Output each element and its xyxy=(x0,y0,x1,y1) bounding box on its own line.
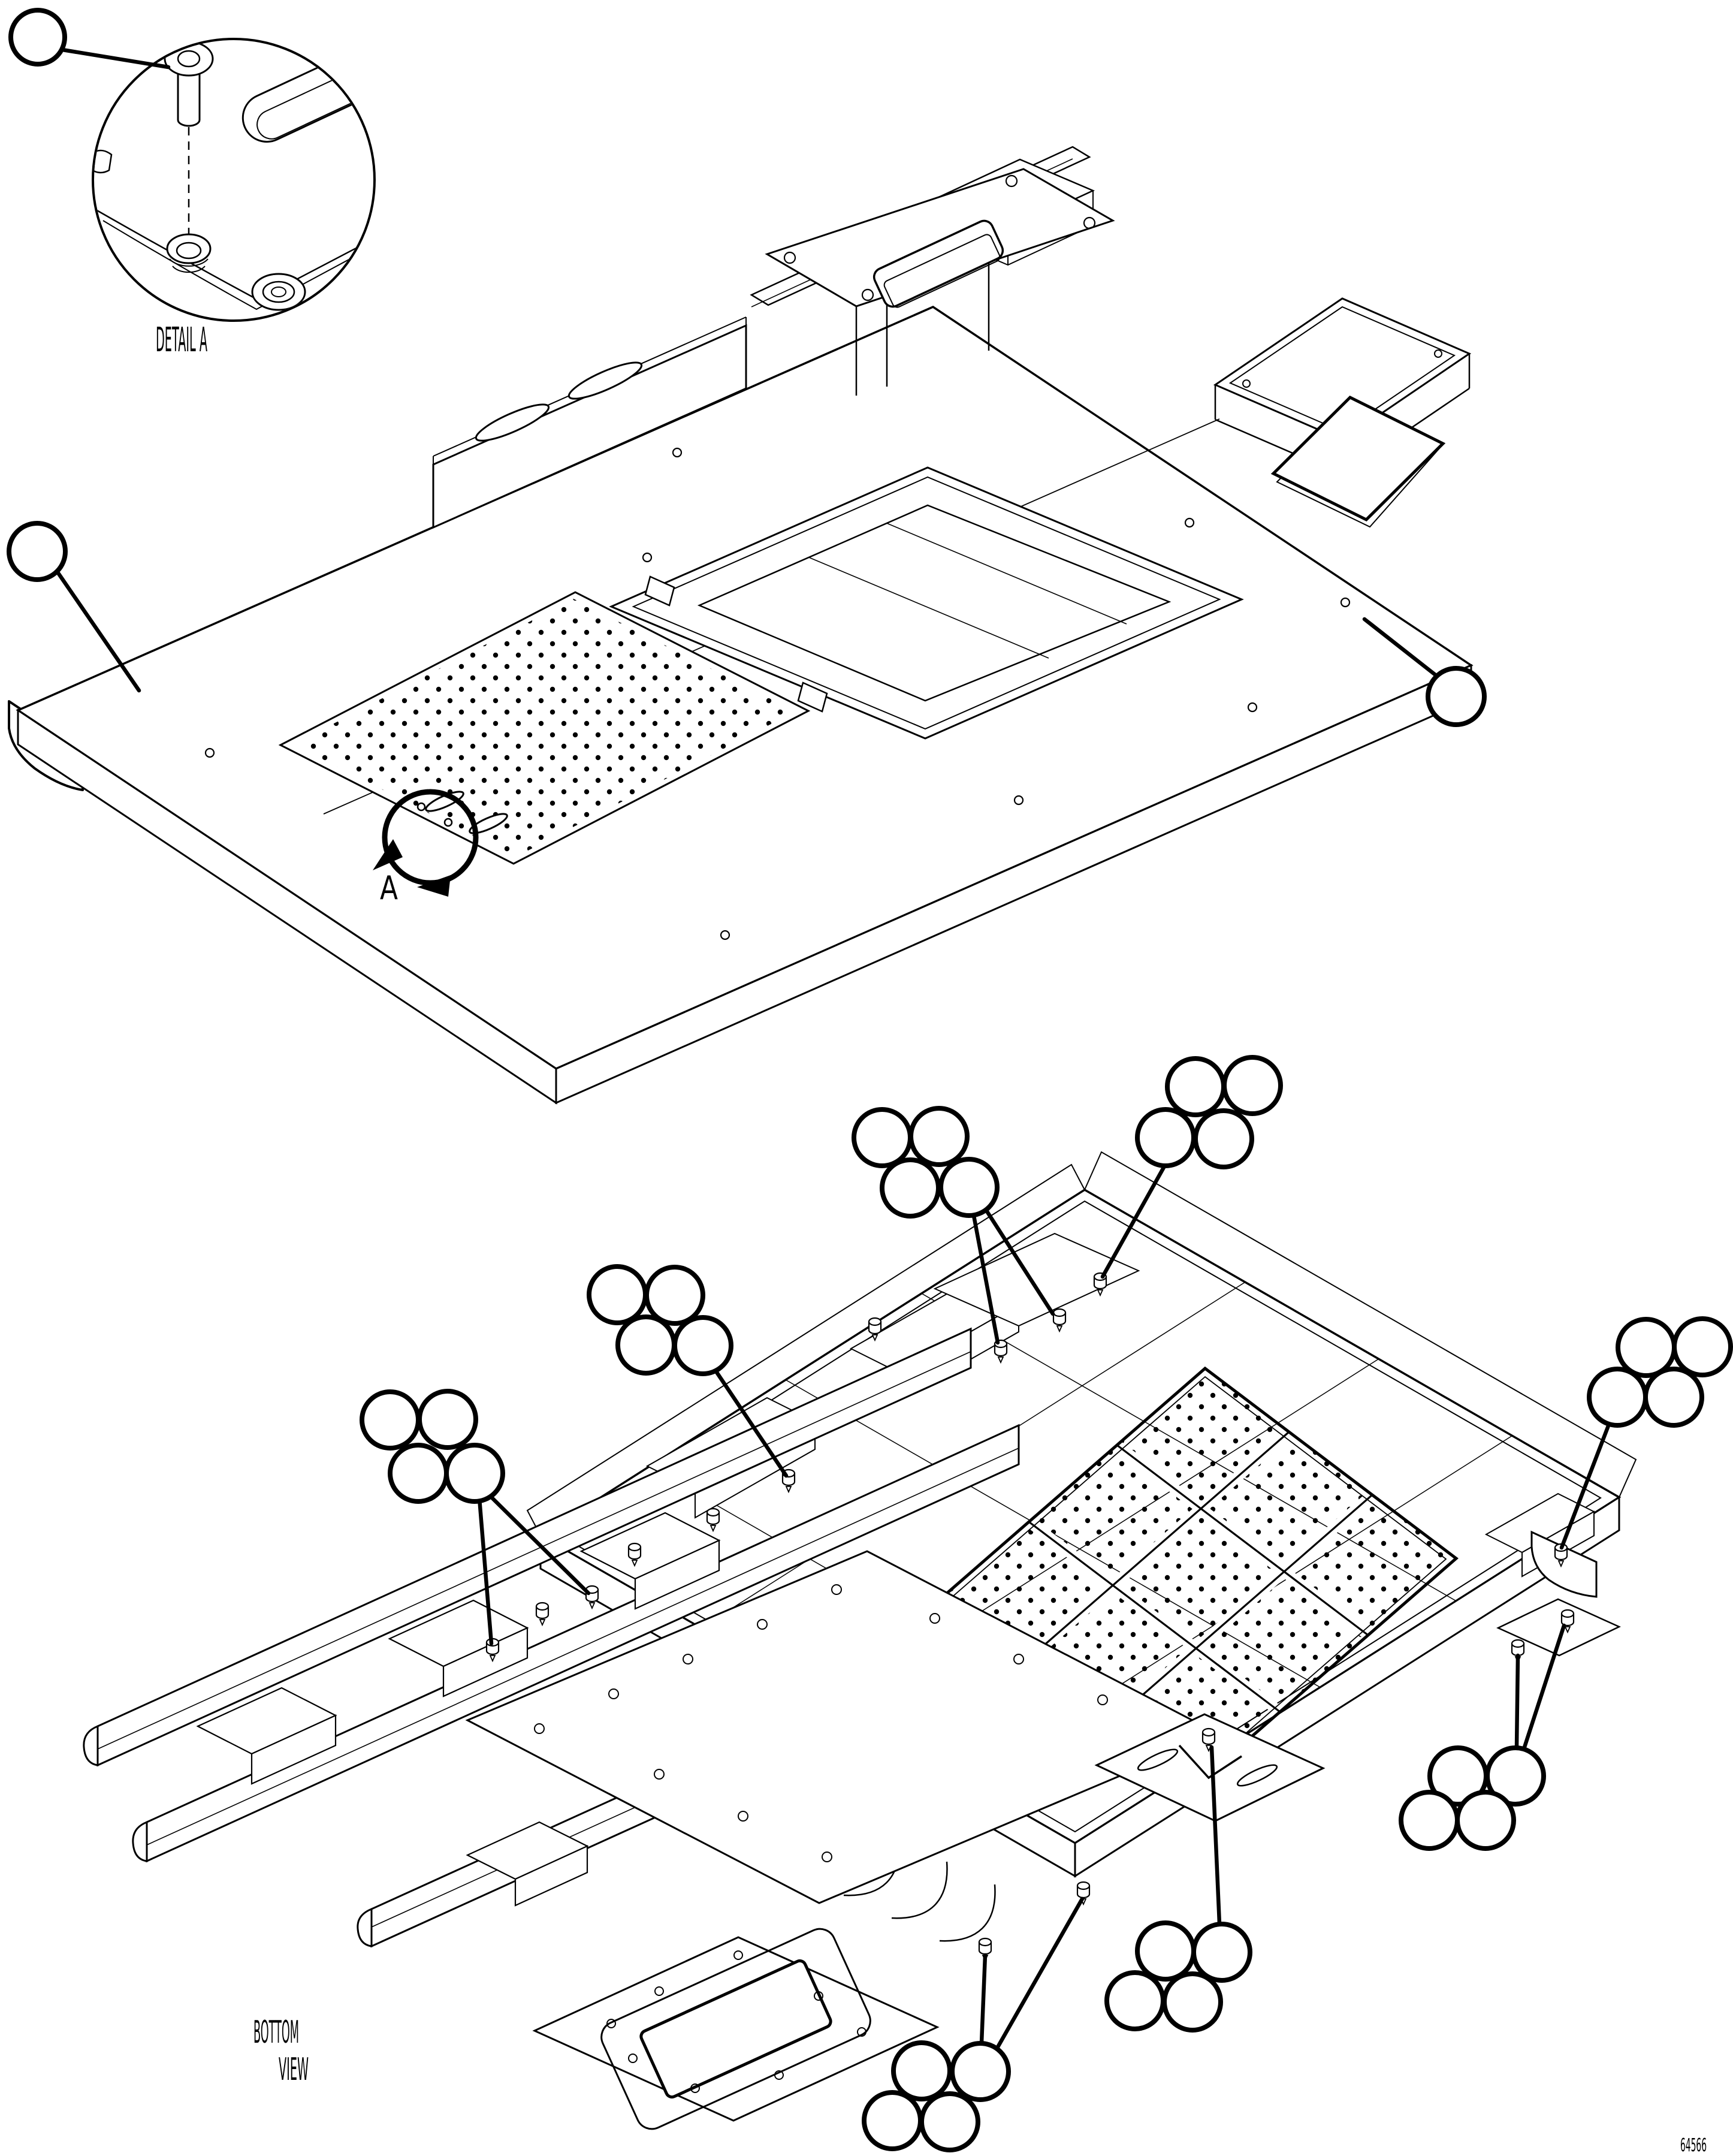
callout-balloon[interactable] xyxy=(1137,1109,1194,1166)
callout-balloon[interactable] xyxy=(1401,1792,1457,1849)
callout-balloon[interactable] xyxy=(941,1159,997,1216)
callout-balloon[interactable] xyxy=(419,1391,476,1448)
callout-balloon[interactable] xyxy=(893,2043,950,2099)
callout-balloon[interactable] xyxy=(362,1392,418,1448)
callout-balloon[interactable] xyxy=(647,1267,703,1323)
callout-leader xyxy=(997,1899,1082,2048)
balloon-detail-screw xyxy=(11,10,168,67)
callout-balloon[interactable] xyxy=(1224,1057,1281,1114)
callout-balloon[interactable] xyxy=(922,2094,978,2150)
callout-leader xyxy=(62,50,168,67)
callout-balloon[interactable] xyxy=(446,1445,503,1501)
fastener-bolt xyxy=(586,1586,598,1608)
threaded-hole xyxy=(167,234,210,272)
callout-balloon[interactable] xyxy=(1428,668,1484,725)
rotation-label: A xyxy=(380,869,398,907)
callout-balloon[interactable] xyxy=(1618,1319,1674,1376)
callout-balloon[interactable] xyxy=(1167,1059,1224,1115)
callout-balloon[interactable] xyxy=(675,1317,731,1374)
bottom-view-label-line1: BOTTOM xyxy=(253,2015,299,2051)
detail-a-label: DETAIL A xyxy=(156,321,207,360)
bottom-view: BOTTOM VIEW xyxy=(84,1152,1636,2134)
callout-balloon[interactable] xyxy=(854,1109,910,1166)
detail-a-inset: DETAIL A xyxy=(90,30,418,360)
callout-balloon[interactable] xyxy=(911,1108,967,1165)
callout-balloon[interactable] xyxy=(9,523,65,580)
callout-balloon[interactable] xyxy=(1164,1974,1221,2030)
diagram-page: DETAIL A xyxy=(0,0,1733,2156)
callout-balloon[interactable] xyxy=(1195,1111,1252,1167)
callout-balloon[interactable] xyxy=(1137,1923,1194,1979)
diagram-sheet: DETAIL A xyxy=(0,0,1733,2156)
callout-balloon[interactable] xyxy=(11,10,65,64)
callout-balloon[interactable] xyxy=(882,1160,938,1216)
callout-balloon[interactable] xyxy=(1107,1973,1163,2029)
callout-balloon[interactable] xyxy=(1674,1319,1731,1375)
callout-balloon[interactable] xyxy=(1589,1369,1646,1425)
callout-balloon[interactable] xyxy=(589,1267,645,1323)
callout-leader xyxy=(1517,1656,1518,1748)
callout-balloon[interactable] xyxy=(1646,1369,1702,1425)
callout-balloon[interactable] xyxy=(1457,1792,1514,1849)
callout-balloon[interactable] xyxy=(864,2092,920,2149)
sheet-number: 64566 xyxy=(1680,2135,1707,2156)
callout-balloon[interactable] xyxy=(390,1445,446,1501)
bottom-view-label-line2: VIEW xyxy=(279,2052,309,2088)
callout-balloon[interactable] xyxy=(952,2043,1009,2100)
cluster-lower-right xyxy=(1401,1626,1564,1849)
callout-balloon[interactable] xyxy=(618,1317,674,1373)
callout-balloon[interactable] xyxy=(1194,1924,1250,1980)
fastener-bolt xyxy=(536,1603,548,1625)
balloon-top-left xyxy=(9,523,139,690)
callout-leader xyxy=(57,571,139,690)
callout-leader xyxy=(982,1955,985,2043)
